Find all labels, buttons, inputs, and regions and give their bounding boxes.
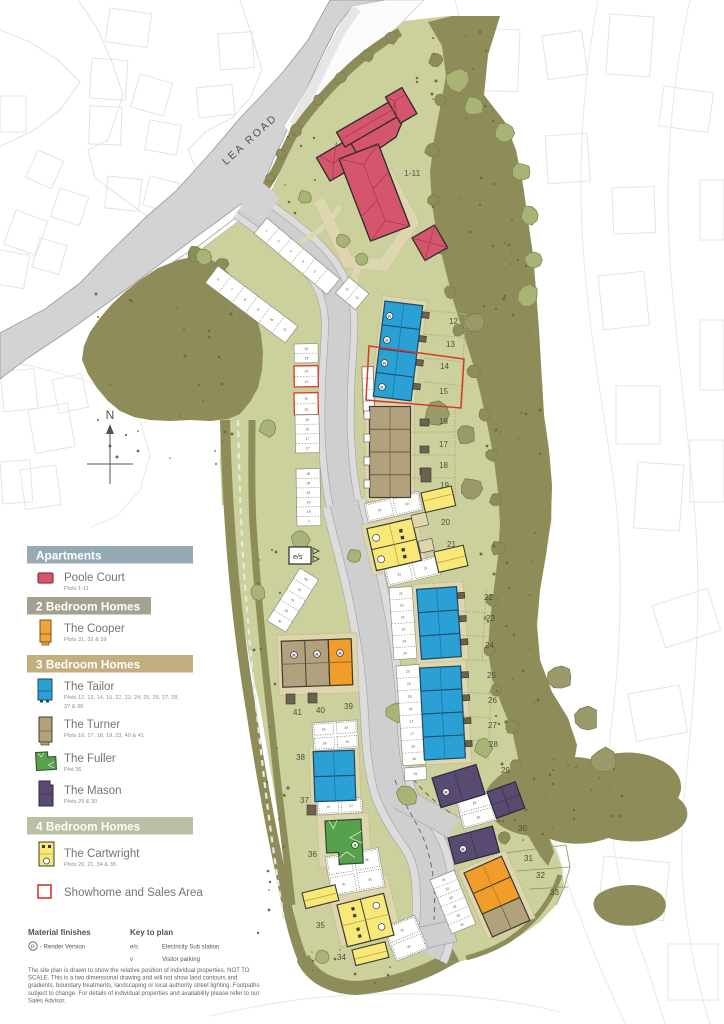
- svg-text:14: 14: [304, 369, 308, 373]
- svg-text:16: 16: [305, 418, 309, 422]
- svg-text:24: 24: [485, 641, 494, 650]
- svg-text:The Mason: The Mason: [64, 785, 122, 797]
- svg-text:19: 19: [307, 510, 311, 514]
- svg-text:Plots 1-11: Plots 1-11: [64, 586, 89, 592]
- svg-text:13: 13: [304, 347, 308, 351]
- svg-text:20: 20: [441, 518, 450, 527]
- svg-text:e/s: e/s: [130, 945, 138, 951]
- svg-text:26: 26: [488, 696, 497, 705]
- svg-text:19: 19: [307, 500, 311, 504]
- svg-text:Material finishes: Material finishes: [28, 928, 91, 937]
- svg-text:1-11: 1-11: [404, 168, 421, 178]
- svg-text:39: 39: [344, 702, 353, 711]
- svg-text:38: 38: [345, 740, 349, 744]
- svg-text:18: 18: [306, 472, 310, 476]
- svg-text:18: 18: [439, 461, 448, 470]
- svg-text:13: 13: [304, 356, 308, 360]
- svg-text:23: 23: [486, 614, 495, 623]
- svg-text:The Cartwright: The Cartwright: [64, 848, 140, 860]
- svg-text:33: 33: [550, 888, 559, 897]
- svg-text:37: 37: [349, 804, 353, 808]
- svg-text:16: 16: [439, 417, 448, 426]
- svg-text:21: 21: [447, 540, 456, 549]
- svg-text:39: 39: [322, 727, 326, 731]
- svg-text:Sales Advisor.: Sales Advisor.: [28, 998, 66, 1004]
- svg-text:25: 25: [406, 670, 410, 674]
- svg-text:38: 38: [323, 741, 327, 745]
- svg-text:37 & 38: 37 & 38: [64, 704, 83, 710]
- svg-text:Showhome and Sales Area: Showhome and Sales Area: [64, 887, 203, 899]
- svg-text:19: 19: [306, 491, 310, 495]
- svg-text:The site plan is drawn to show: The site plan is drawn to show the relat…: [28, 968, 250, 974]
- svg-text:subject to change. For details: subject to change. For details of indivi…: [28, 991, 259, 997]
- svg-text:Apartments: Apartments: [36, 549, 102, 563]
- svg-text:25: 25: [407, 682, 411, 686]
- svg-text:40: 40: [316, 706, 325, 715]
- svg-text:The Fuller: The Fuller: [64, 753, 116, 765]
- svg-text:17: 17: [306, 446, 310, 450]
- svg-text:v: v: [130, 957, 133, 963]
- svg-text:31: 31: [524, 854, 533, 863]
- svg-text:14: 14: [440, 362, 449, 371]
- svg-text:34: 34: [337, 953, 346, 962]
- svg-text:Key to plan: Key to plan: [130, 928, 173, 937]
- svg-text:23: 23: [401, 615, 405, 619]
- svg-text:13: 13: [446, 340, 455, 349]
- svg-text:3 Bedroom Homes: 3 Bedroom Homes: [36, 658, 141, 672]
- svg-text:23: 23: [401, 627, 405, 631]
- svg-text:27: 27: [409, 719, 413, 723]
- svg-text:Poole Court: Poole Court: [64, 572, 126, 584]
- svg-text:25: 25: [487, 671, 496, 680]
- svg-text:Plots 16, 17, 18, 19, 33, 40 &: Plots 16, 17, 18, 19, 33, 40 & 41: [64, 733, 144, 739]
- svg-text:26: 26: [408, 694, 412, 698]
- svg-text:15: 15: [304, 397, 308, 401]
- svg-text:17: 17: [439, 440, 448, 449]
- svg-text:17: 17: [305, 437, 309, 441]
- svg-text:Plots 12, 13, 14, 15, 22, 23,: Plots 12, 13, 14, 15, 22, 23, 24, 25, 26…: [64, 695, 180, 701]
- svg-text:29: 29: [413, 772, 417, 776]
- svg-text:37: 37: [300, 796, 309, 805]
- svg-text:22: 22: [399, 591, 403, 595]
- svg-text:- Render Version: - Render Version: [40, 945, 85, 951]
- svg-text:35: 35: [316, 921, 325, 930]
- svg-text:26: 26: [409, 707, 413, 711]
- svg-text:30: 30: [518, 824, 527, 833]
- svg-text:15: 15: [304, 408, 308, 412]
- svg-text:R: R: [31, 944, 35, 950]
- svg-text:18: 18: [306, 481, 310, 485]
- svg-text:32: 32: [536, 871, 545, 880]
- svg-text:Plots 31, 32 & 39: Plots 31, 32 & 39: [64, 637, 107, 643]
- svg-text:28: 28: [412, 757, 416, 761]
- svg-text:Electricity Sub station: Electricity Sub station: [162, 945, 219, 951]
- svg-text:22: 22: [484, 593, 493, 602]
- svg-text:Plots 20, 21, 34 & 35: Plots 20, 21, 34 & 35: [64, 862, 116, 868]
- svg-text:The Turner: The Turner: [64, 719, 120, 731]
- svg-text:39: 39: [344, 726, 348, 730]
- svg-text:N: N: [106, 408, 115, 422]
- svg-text:4 Bedroom Homes: 4 Bedroom Homes: [36, 820, 141, 834]
- svg-text:36: 36: [308, 850, 317, 859]
- svg-text:Plot 36: Plot 36: [64, 767, 81, 773]
- svg-text:22: 22: [400, 603, 404, 607]
- svg-text:24: 24: [402, 639, 406, 643]
- svg-text:27: 27: [488, 721, 497, 730]
- svg-text:16: 16: [305, 427, 309, 431]
- svg-text:15: 15: [439, 387, 448, 396]
- svg-text:29: 29: [501, 766, 510, 775]
- svg-text:Plots 29 & 30: Plots 29 & 30: [64, 799, 97, 805]
- svg-text:e/s: e/s: [293, 554, 303, 561]
- svg-text:38: 38: [296, 753, 305, 762]
- svg-text:24: 24: [403, 651, 407, 655]
- svg-text:28: 28: [411, 744, 415, 748]
- svg-text:12: 12: [449, 317, 458, 326]
- svg-text:28: 28: [489, 740, 498, 749]
- svg-text:Visitor parking: Visitor parking: [162, 957, 200, 963]
- svg-text:2 Bedroom Homes: 2 Bedroom Homes: [36, 600, 141, 614]
- svg-text:14: 14: [304, 380, 308, 384]
- svg-text:gradients, boundary treatments: gradients, boundary treatments, landscap…: [28, 983, 259, 989]
- svg-text:The Cooper: The Cooper: [64, 623, 125, 635]
- svg-text:41: 41: [293, 708, 302, 717]
- svg-text:The Tailor: The Tailor: [64, 681, 114, 693]
- svg-text:SCALE. This is a two dimension: SCALE. This is a two dimensional drawing…: [28, 976, 237, 982]
- svg-text:27: 27: [410, 732, 414, 736]
- svg-text:37: 37: [327, 805, 331, 809]
